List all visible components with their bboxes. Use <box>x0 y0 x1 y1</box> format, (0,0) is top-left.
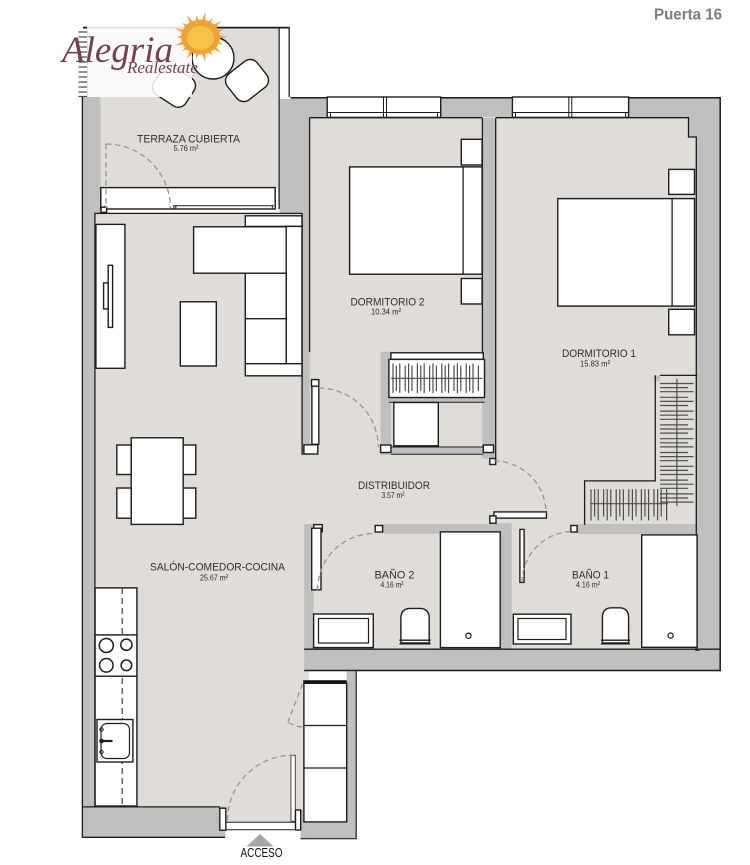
svg-text:3.57 m²: 3.57 m² <box>382 490 405 500</box>
svg-text:ACCESO: ACCESO <box>241 846 283 860</box>
svg-text:Realestate: Realestate <box>126 58 198 77</box>
svg-text:5.76 m²: 5.76 m² <box>174 143 199 153</box>
svg-text:4.16 m²: 4.16 m² <box>381 580 404 590</box>
svg-text:Puerta 16: Puerta 16 <box>654 7 722 24</box>
svg-text:15.83 m²: 15.83 m² <box>580 359 610 369</box>
svg-text:25.67 m²: 25.67 m² <box>200 573 228 583</box>
svg-text:4.16 m²: 4.16 m² <box>576 580 600 590</box>
svg-text:10.34 m²: 10.34 m² <box>371 307 401 317</box>
